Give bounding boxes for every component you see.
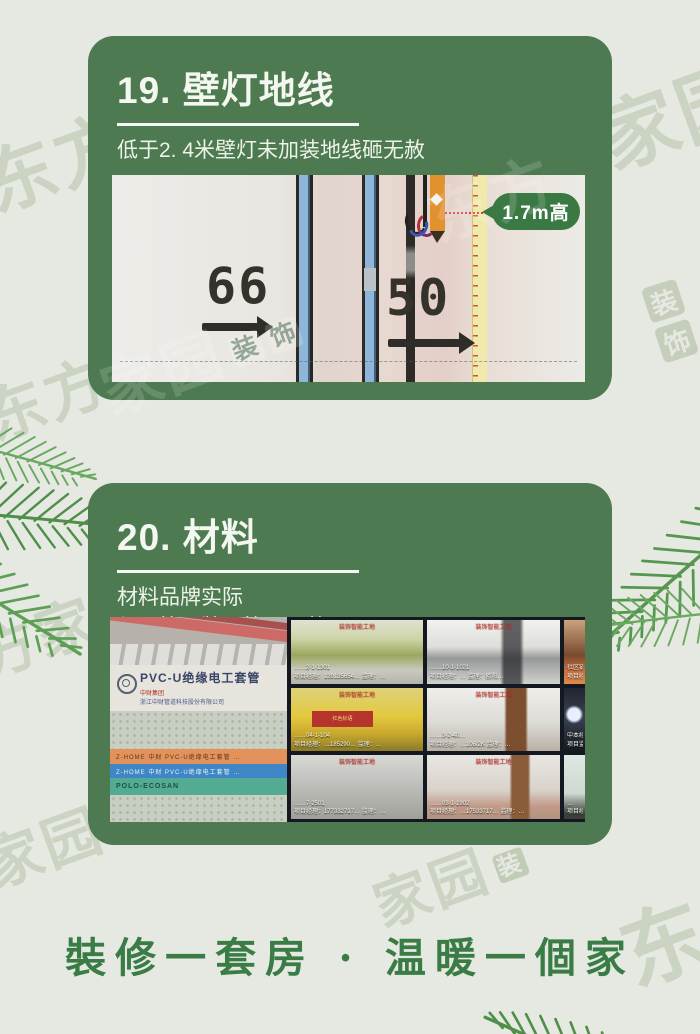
tip-card-20: 20. 材料 材料品牌实际与预算品牌不符砸无赦 PVC-U绝缘电工套管 中财集团…: [88, 483, 612, 845]
title-underline: [117, 123, 359, 126]
site-photo-tile: 装饰智能工地 ……3-2-40…项目经理：…106/2K 监理：…: [427, 688, 560, 752]
pvc-label-band: PVC-U绝缘电工套管 中财集团 浙江中财管道科技股份有限公司: [110, 665, 287, 711]
card-19-title: 19. 壁灯地线: [88, 36, 612, 114]
site-photo-tile-partial: …项目经理…: [564, 755, 585, 819]
site-photo-tile: 装饰智能工地 ……03-1-1902项目经理：…17533717… 监理：…: [427, 755, 560, 819]
green-pipe-stripe: POLO-ECOSAN: [110, 778, 287, 795]
wrapped-pipes-texture: [110, 711, 287, 749]
conduit-coupler: [364, 268, 376, 291]
card-20-title: 20. 材料: [88, 483, 612, 561]
site-photo-tile-partial: 中本经理…项目监理…: [564, 688, 585, 752]
wrapped-pipes-texture: [110, 795, 287, 822]
watermark-deco-right: 装 饰: [641, 278, 699, 363]
zhongcai-logo-icon: [117, 674, 137, 694]
pvc-label-text: PVC-U绝缘电工套管: [140, 669, 283, 686]
red-banner: 红色标语: [312, 711, 373, 728]
orange-pipe-stripe: Z-HOME 中财 PVC-U绝缘电工套管 …: [110, 749, 287, 764]
arrow-under-50: [388, 339, 460, 347]
pvc-brand-text: 中财集团: [140, 688, 283, 697]
red-pipe-stack: [110, 617, 287, 644]
blue-pipe-stripe: Z-HOME 中财 PVC-U绝缘电工套管 …: [110, 764, 287, 778]
site-photo-tile: 装饰智能工地 红色标语 ……04-1-104项目经理：…185290… 监理：…: [291, 688, 423, 752]
brand-slogan: 裝修一套房 · 温暖一個家: [0, 924, 700, 984]
site-photo-tile-partial: 社区链…项目经理：…: [564, 620, 585, 684]
materials-photo-collage: PVC-U绝缘电工套管 中财集团 浙江中财管道科技股份有限公司 Z-HOME 中…: [110, 617, 585, 822]
site-photo-tile: 装饰智能工地 ……2-1-1301项目经理：139135654… 监理：…: [291, 620, 423, 684]
site-photo-tile: 装饰智能工地 ……10-1-1021项目经理：… 监理：欧阳…: [427, 620, 560, 684]
title-underline: [117, 570, 359, 573]
site-camera-grid: 装饰智能工地 ……2-1-1301项目经理：139135654… 监理：… 装饰…: [287, 617, 585, 822]
pvc-pipes-photo: PVC-U绝缘电工套管 中财集团 浙江中财管道科技股份有限公司 Z-HOME 中…: [110, 617, 287, 822]
poster-page: 东方 家园 东方 装 饰 方家 家园装 家园装 东 19. 壁灯地线 低于2. …: [0, 0, 700, 1034]
site-photo-tile: 装饰智能工地 ……7-2501项目经理：177332717… 监理：…: [291, 755, 423, 819]
white-pipe-bundle: [110, 644, 287, 665]
wall-number-50: 50: [386, 269, 450, 327]
pvc-company-text: 浙江中财管道科技股份有限公司: [140, 697, 283, 706]
